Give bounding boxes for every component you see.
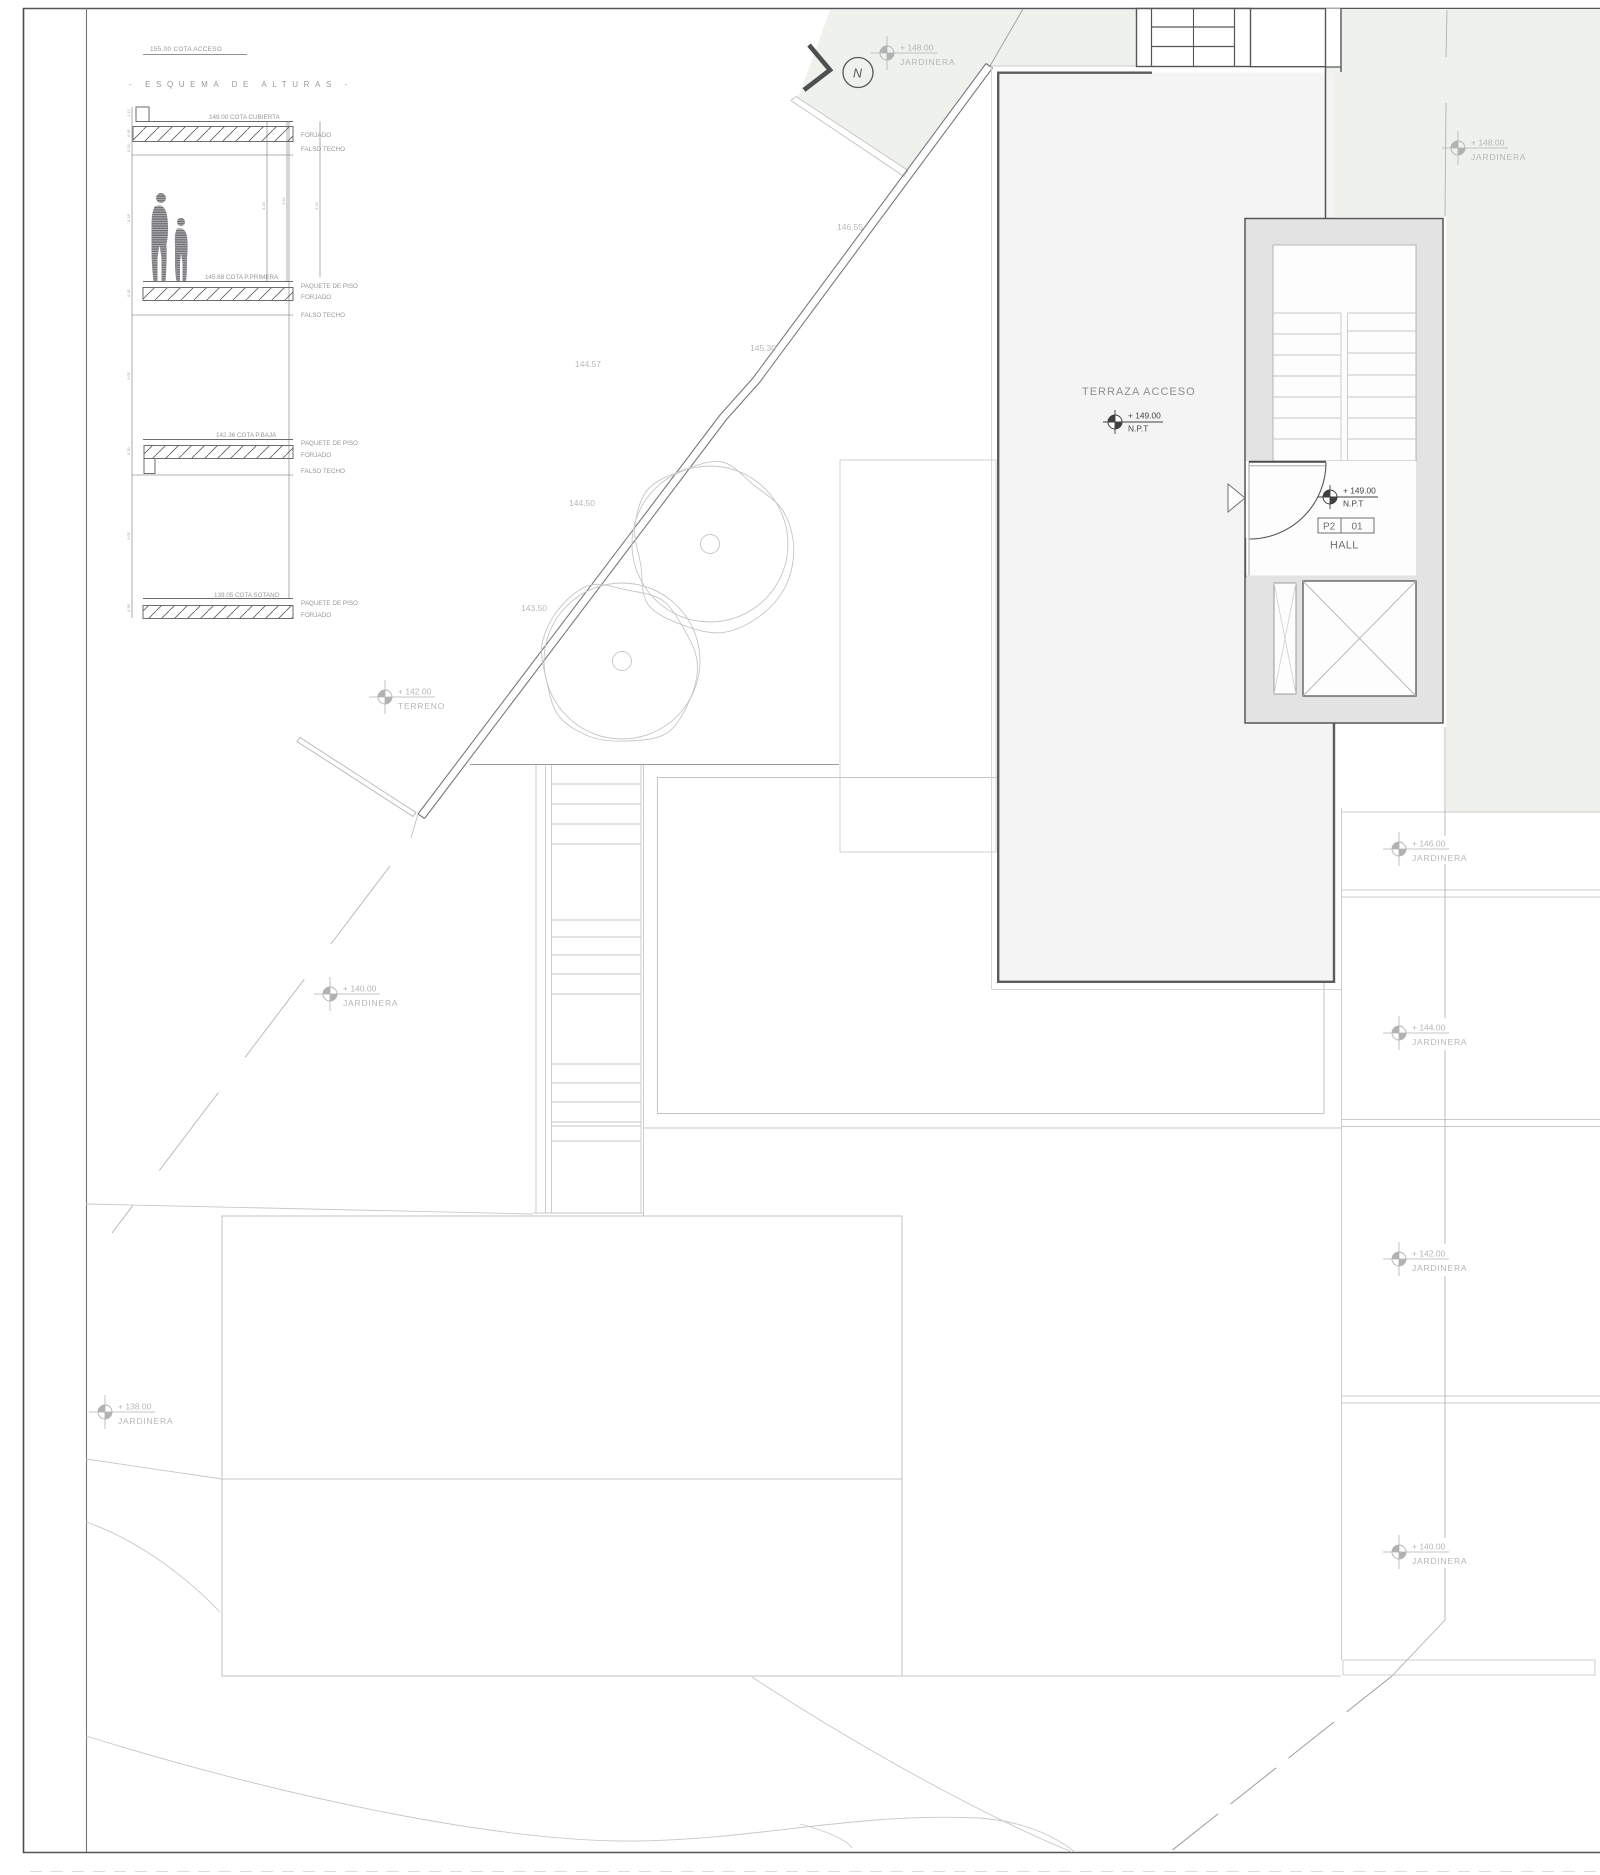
svg-text:3.18: 3.18 <box>126 213 131 222</box>
svg-text:FALSO TECHO: FALSO TECHO <box>301 312 345 319</box>
svg-text:FALSO TECHO: FALSO TECHO <box>301 146 345 153</box>
svg-text:3.32: 3.32 <box>314 201 319 210</box>
svg-text:3.05: 3.05 <box>126 531 131 540</box>
svg-text:139.05 COTA SOTANO: 139.05 COTA SOTANO <box>214 592 280 599</box>
svg-text:1.12: 1.12 <box>126 108 131 117</box>
svg-text:JARDINERA: JARDINERA <box>1471 152 1526 162</box>
svg-text:FALSO TECHO: FALSO TECHO <box>301 468 345 475</box>
svg-text:155.00 COTA ACCESO: 155.00 COTA ACCESO <box>150 46 222 53</box>
svg-text:0.35: 0.35 <box>126 288 131 297</box>
svg-text:FORJADO: FORJADO <box>301 132 331 139</box>
svg-text:HALL: HALL <box>1330 540 1359 552</box>
svg-text:0.35: 0.35 <box>126 446 131 455</box>
svg-text:146.55: 146.55 <box>837 222 863 232</box>
svg-text:0.35: 0.35 <box>126 128 131 137</box>
svg-text:3.18: 3.18 <box>261 201 266 210</box>
svg-text:143.50: 143.50 <box>521 603 547 613</box>
svg-text:0.25: 0.25 <box>126 143 131 152</box>
svg-text:+ 138.00: + 138.00 <box>118 1402 152 1412</box>
svg-text:+ 144.00: + 144.00 <box>1412 1023 1446 1033</box>
svg-text:+ 149.00: + 149.00 <box>1343 486 1376 496</box>
svg-text:142.36 COTA P.BAJA: 142.36 COTA P.BAJA <box>216 432 277 439</box>
svg-text:+ 142.00: + 142.00 <box>398 687 432 697</box>
svg-text:FORJADO: FORJADO <box>301 452 331 459</box>
svg-text:JARDINERA: JARDINERA <box>1412 1263 1467 1273</box>
svg-text:JARDINERA: JARDINERA <box>1412 1037 1467 1047</box>
svg-text:JARDINERA: JARDINERA <box>1412 1556 1467 1566</box>
svg-text:JARDINERA: JARDINERA <box>343 998 398 1008</box>
svg-text:TERRENO: TERRENO <box>398 701 445 711</box>
svg-text:+ 142.00: + 142.00 <box>1412 1249 1446 1259</box>
svg-text:145.68 COTA P.PRIMERA: 145.68 COTA P.PRIMERA <box>205 274 279 281</box>
svg-text:01: 01 <box>1352 522 1364 533</box>
svg-text:N.P.T: N.P.T <box>1128 424 1148 434</box>
svg-text:+ 148.00: + 148.00 <box>900 43 934 53</box>
svg-text:P2: P2 <box>1323 522 1336 533</box>
svg-text:+ 149.00: + 149.00 <box>1128 411 1161 421</box>
svg-text:3.05: 3.05 <box>126 371 131 380</box>
svg-text:JARDINERA: JARDINERA <box>118 1416 173 1426</box>
svg-text:TERRAZA ACCESO: TERRAZA ACCESO <box>1082 386 1196 398</box>
svg-text:+ 140.00: + 140.00 <box>1412 1542 1446 1552</box>
svg-text:JARDINERA: JARDINERA <box>900 57 955 67</box>
svg-text:144.57: 144.57 <box>575 359 601 369</box>
svg-text:145.30: 145.30 <box>750 343 776 353</box>
svg-text:FORJADO: FORJADO <box>301 294 331 301</box>
svg-text:0.35: 0.35 <box>126 603 131 612</box>
svg-text:144.50: 144.50 <box>569 498 595 508</box>
svg-text:PAQUETE DE PISO: PAQUETE DE PISO <box>301 283 358 290</box>
svg-text:PAQUETE DE PISO: PAQUETE DE PISO <box>301 440 358 447</box>
svg-text:N: N <box>853 67 863 81</box>
svg-text:N.P.T: N.P.T <box>1343 499 1363 509</box>
svg-text:PAQUETE DE PISO: PAQUETE DE PISO <box>301 600 358 607</box>
svg-text:+ 148.00: + 148.00 <box>1471 138 1505 148</box>
svg-text:JARDINERA: JARDINERA <box>1412 853 1467 863</box>
svg-text:149.00 COTA CUBIERTA: 149.00 COTA CUBIERTA <box>209 114 280 121</box>
svg-text:+ 146.00: + 146.00 <box>1412 839 1446 849</box>
svg-text:FORJADO: FORJADO <box>301 612 331 619</box>
svg-text:3.32: 3.32 <box>281 196 286 205</box>
svg-text:+ 140.00: + 140.00 <box>343 984 377 994</box>
svg-text:- ESQUEMA DE ALTURAS -: - ESQUEMA DE ALTURAS - <box>129 80 353 89</box>
